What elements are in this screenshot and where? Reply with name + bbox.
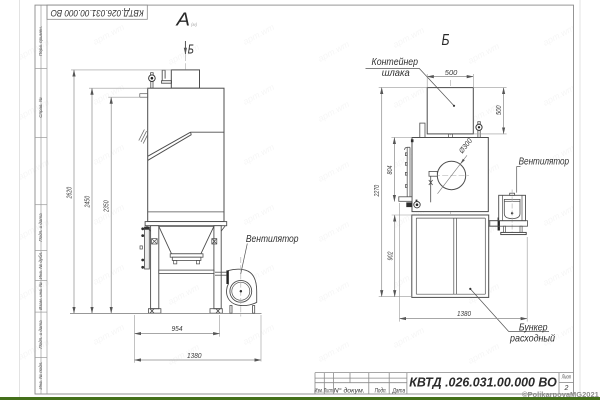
svg-text:Перв. примен.: Перв. примен. [38,26,43,56]
svg-text:Подп. и дата: Подп. и дата [38,320,43,349]
svg-text:шлака: шлака [382,67,410,79]
svg-text:954: 954 [172,324,183,333]
svg-text:Инв. № дубл.: Инв. № дубл. [38,252,43,280]
svg-text:Дата: Дата [392,388,406,395]
svg-text:804: 804 [385,166,394,175]
svg-text:КВТД.026.031.00.000 ВО: КВТД.026.031.00.000 ВО [51,8,144,18]
svg-text:Вентилятор: Вентилятор [519,155,570,167]
svg-text:Б: Б [188,41,194,56]
svg-text:1380: 1380 [187,351,202,360]
svg-text:2350: 2350 [102,200,111,213]
svg-text:КВТД .026.031.00.000 ВО: КВТД .026.031.00.000 ВО [409,374,557,389]
svg-text:Взам. инв. №: Взам. инв. № [38,282,43,310]
svg-text:2270: 2270 [372,184,381,197]
svg-text:500: 500 [494,105,503,115]
svg-text:Вентилятор: Вентилятор [246,233,299,245]
svg-text:Б: Б [442,32,450,49]
svg-text:500: 500 [445,68,458,77]
svg-text:Бункер: Бункер [519,321,548,333]
svg-text:Лист: Лист [561,374,572,380]
svg-text:902: 902 [385,252,394,261]
svg-text:Инв. № подл.: Инв. № подл. [38,362,43,390]
svg-text:N° докум.: N° докум. [334,387,365,395]
svg-text:Подп.: Подп. [375,387,387,395]
svg-text:Лист: Лист [323,388,333,395]
svg-text:2450: 2450 [83,195,92,208]
svg-text:А: А [175,10,190,30]
svg-text:Изм.: Изм. [315,388,323,395]
svg-text:1380: 1380 [457,309,472,318]
svg-text:2620: 2620 [65,186,74,199]
svg-text:(м): (м) [191,22,198,27]
svg-text:расходный: расходный [509,333,555,345]
svg-text:Справ. №: Справ. № [38,97,43,118]
svg-text:Подп. и дата: Подп. и дата [38,213,43,242]
